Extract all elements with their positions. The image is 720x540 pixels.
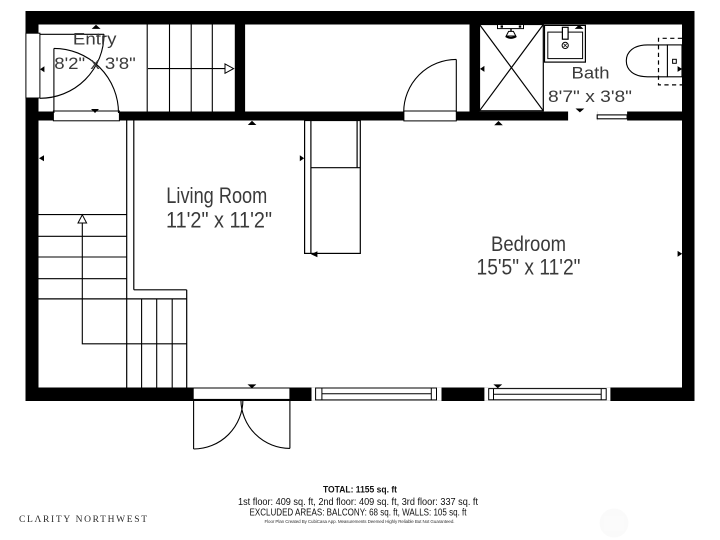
svg-text:CLΛRITY NORTHWEST: CLΛRITY NORTHWEST: [19, 515, 149, 525]
svg-text:11'2" x 11'2": 11'2" x 11'2": [166, 207, 272, 232]
svg-text:15'5" x 11'2": 15'5" x 11'2": [477, 255, 581, 280]
svg-text:8'7" x 3'8": 8'7" x 3'8": [548, 88, 632, 106]
svg-text:Floor Plan Created By CubiCasa: Floor Plan Created By CubiCasa App. Meas…: [265, 519, 455, 524]
svg-text:EXCLUDED AREAS: BALCONY: 68 sq: EXCLUDED AREAS: BALCONY: 68 sq. ft, WALL…: [250, 508, 467, 519]
svg-text:1st floor: 409 sq. ft, 2nd flo: 1st floor: 409 sq. ft, 2nd floor: 409 sq…: [238, 497, 478, 508]
svg-text:TOTAL: 1155 sq. ft: TOTAL: 1155 sq. ft: [323, 485, 397, 495]
svg-text:Bedroom: Bedroom: [491, 232, 566, 256]
svg-text:Living Room: Living Room: [166, 183, 267, 208]
svg-text:Bath: Bath: [572, 65, 610, 83]
svg-text:8'2" x 3'8": 8'2" x 3'8": [54, 55, 136, 73]
svg-text:Entry: Entry: [73, 30, 117, 48]
